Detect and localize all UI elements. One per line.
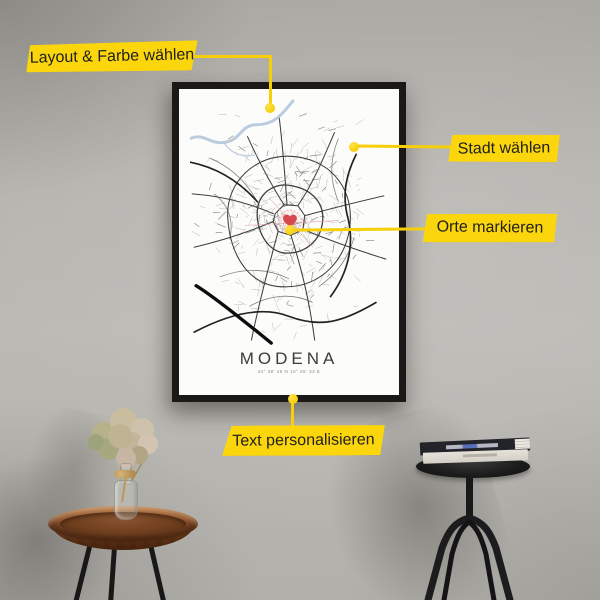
city-map [190, 99, 388, 346]
table-leg-right [148, 545, 166, 600]
connector-orte-dot [285, 225, 295, 235]
connector-text [291, 401, 294, 427]
black-book-spine-marks [446, 443, 498, 449]
connector-stadt-dot [349, 142, 359, 152]
poster-mat: MODENA 44° 38' 49 N 10° 55' 33 E [179, 89, 399, 395]
callout-layout-farbe[interactable]: Layout & Farbe wählen [26, 40, 199, 74]
poster-frame: MODENA 44° 38' 49 N 10° 55' 33 E [172, 82, 406, 402]
poster-title: MODENA [190, 349, 388, 369]
railway-line [196, 286, 271, 343]
callout-orte-label: Orte markieren [437, 218, 544, 237]
callout-text-personalisieren-label: Text personalisieren [232, 431, 374, 450]
white-book-spine-marks [463, 453, 497, 457]
table-leg-center [108, 548, 117, 600]
callout-stadt[interactable]: Stadt wählen [448, 133, 560, 164]
connector-text-dot [288, 394, 298, 404]
callout-stadt-label: Stadt wählen [458, 139, 551, 158]
river [190, 101, 293, 143]
black-book-pages [515, 439, 530, 450]
product-scene: MODENA 44° 38' 49 N 10° 55' 33 E Layout … [0, 0, 600, 600]
callout-text-personalisieren[interactable]: Text personalisieren [222, 424, 385, 457]
table-leg-left [73, 545, 92, 600]
dried-hydrangea-flower [88, 406, 162, 470]
connector-layout-dot [265, 103, 275, 113]
poster-coordinates: 44° 38' 49 N 10° 55' 33 E [240, 369, 339, 374]
stool-legs [398, 470, 538, 600]
connector-layout-v [269, 55, 272, 105]
callout-layout-farbe-label: Layout & Farbe wählen [30, 46, 195, 67]
callout-orte[interactable]: Orte markieren [423, 212, 557, 243]
connector-layout-h [192, 55, 272, 58]
glass-bottle-vase [114, 480, 138, 520]
